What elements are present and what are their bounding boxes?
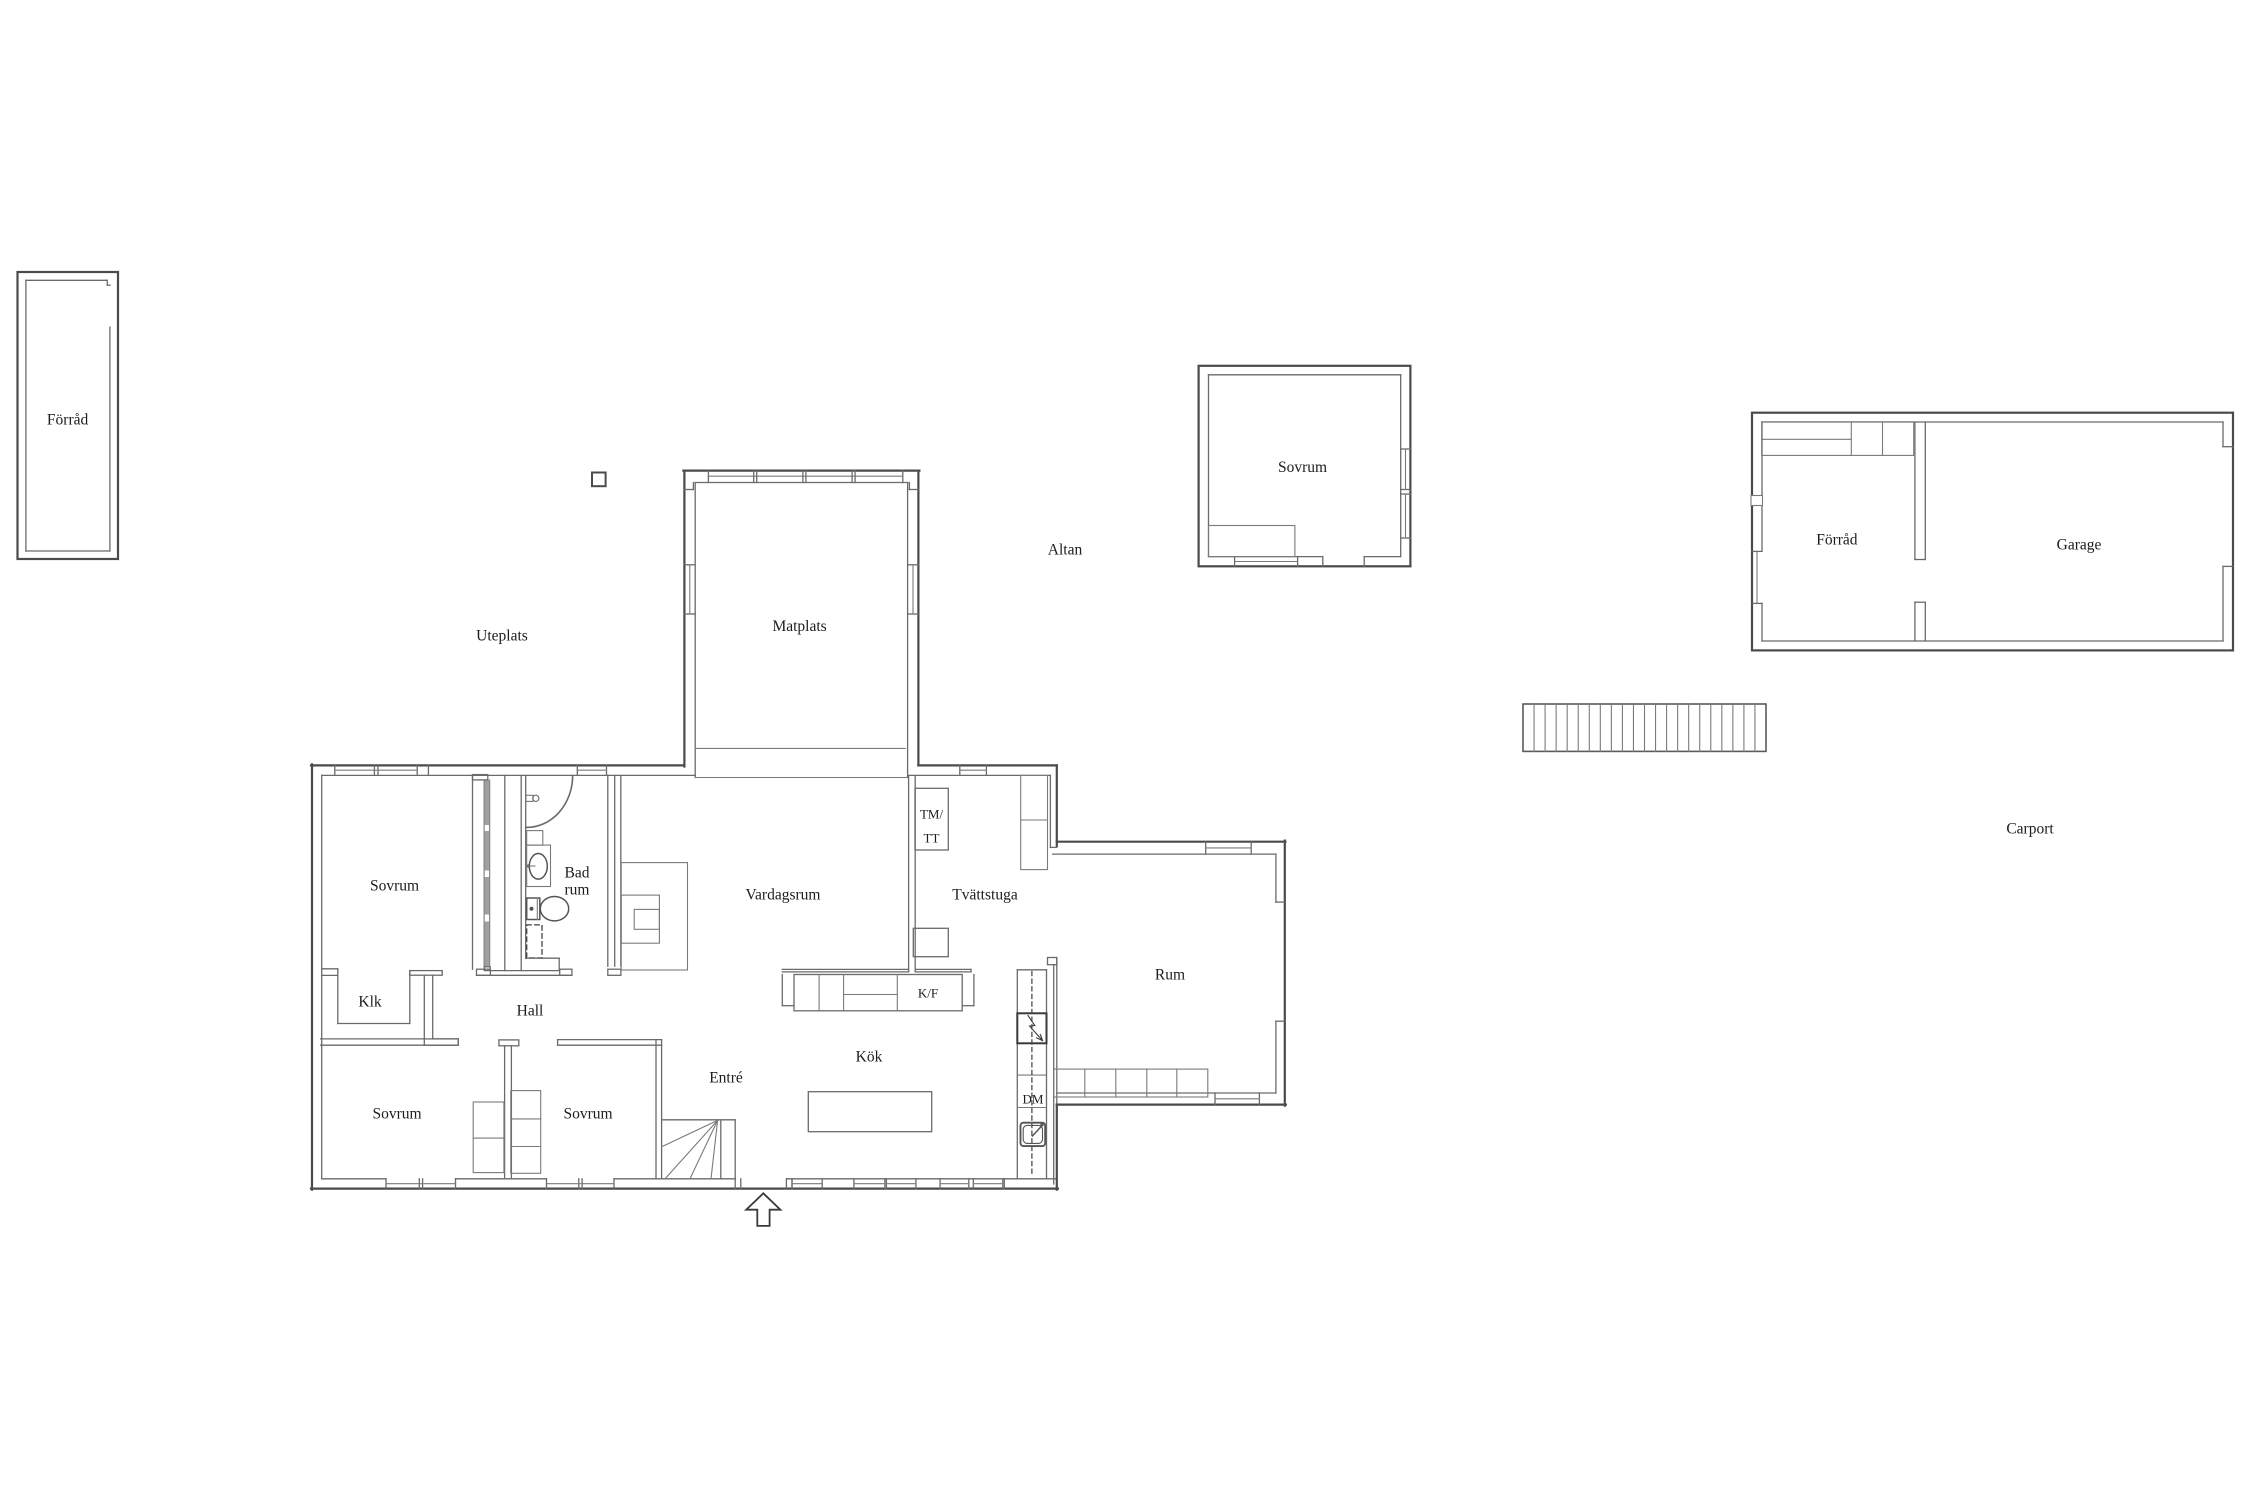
svg-text:Förråd: Förråd	[47, 412, 89, 429]
svg-text:TM/: TM/	[920, 807, 944, 822]
svg-text:Kök: Kök	[856, 1049, 883, 1066]
svg-text:DM: DM	[1023, 1092, 1044, 1107]
svg-text:Garage: Garage	[2057, 537, 2102, 554]
svg-text:Entré: Entré	[709, 1070, 743, 1087]
svg-text:TT: TT	[924, 831, 940, 846]
svg-text:Sovrum: Sovrum	[1278, 459, 1327, 476]
svg-text:K/F: K/F	[918, 985, 938, 1000]
svg-text:Sovrum: Sovrum	[563, 1106, 612, 1123]
svg-text:Carport: Carport	[2006, 821, 2054, 838]
svg-text:Sovrum: Sovrum	[372, 1106, 421, 1123]
svg-text:Rum: Rum	[1155, 967, 1185, 984]
svg-text:rum: rum	[565, 882, 590, 899]
svg-text:Förråd: Förråd	[1816, 532, 1858, 549]
svg-text:Vardagsrum: Vardagsrum	[746, 887, 821, 904]
svg-text:Tvättstuga: Tvättstuga	[952, 887, 1018, 904]
svg-text:Klk: Klk	[358, 994, 382, 1011]
svg-text:Altan: Altan	[1048, 542, 1083, 559]
svg-text:Sovrum: Sovrum	[370, 878, 419, 895]
svg-text:Bad: Bad	[565, 865, 590, 882]
svg-text:Hall: Hall	[517, 1003, 544, 1020]
svg-text:Uteplats: Uteplats	[476, 628, 528, 645]
svg-text:Matplats: Matplats	[772, 618, 826, 635]
